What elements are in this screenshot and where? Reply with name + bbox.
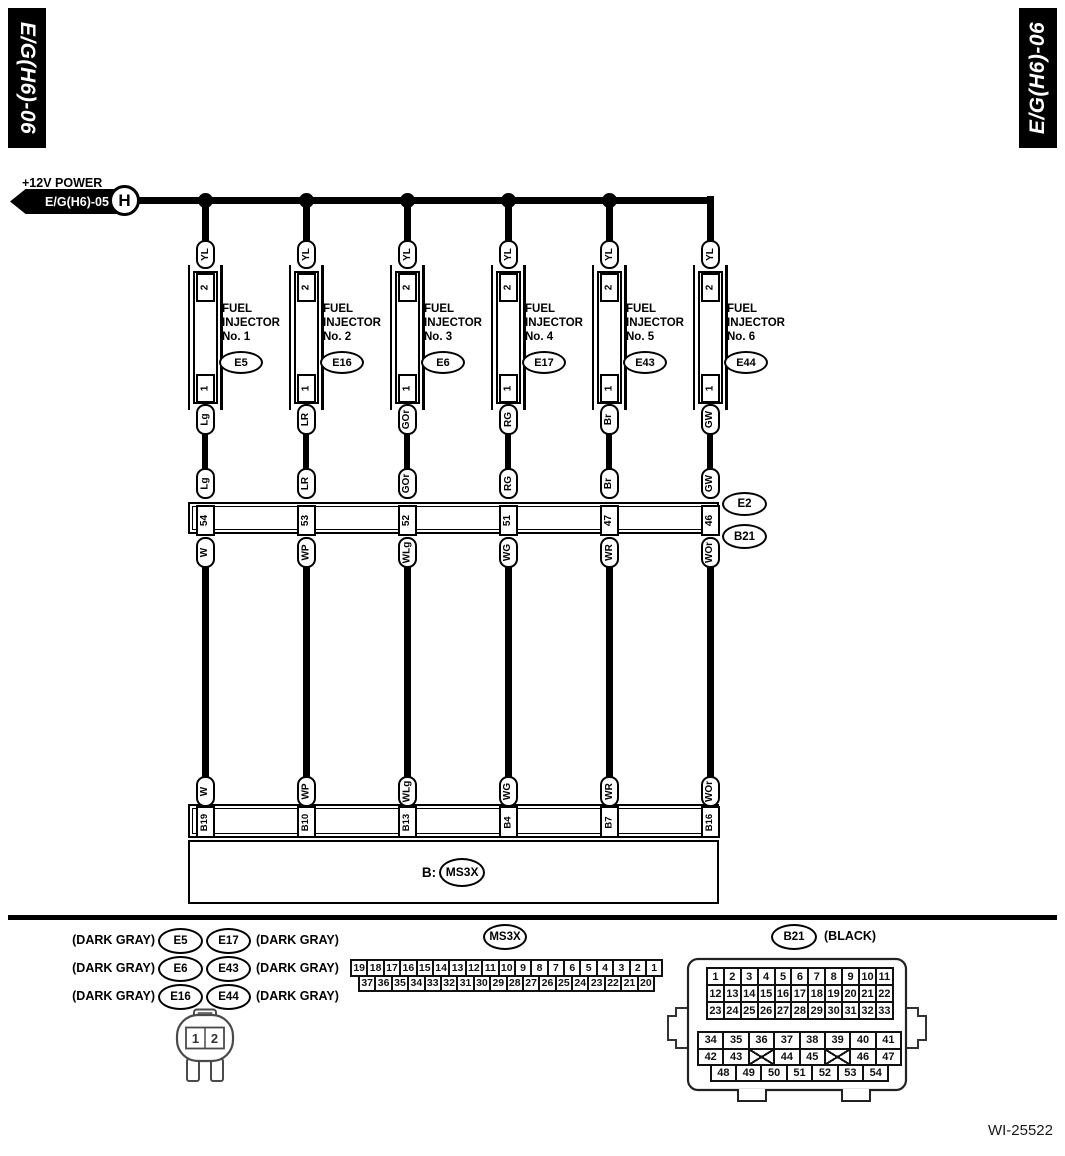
injector-label-line1: FUEL [222, 302, 280, 316]
wire-color-text: Br [604, 414, 615, 425]
ms3x-pin-cell: 25 [556, 976, 572, 992]
ecu-box: B: MS3X [188, 840, 719, 904]
b21-color-note: (BLACK) [824, 929, 876, 943]
wire-color-text: WOr [705, 781, 716, 802]
power-label: +12V POWER [22, 176, 102, 190]
injector-pin-bottom: 1 [600, 374, 619, 403]
injector-label-number: No. 6 [727, 330, 785, 344]
wire-color-label: Br [600, 468, 619, 499]
legend-connector-ref: E6 [158, 956, 203, 982]
injector-label-line2: INJECTOR [626, 316, 684, 330]
b21-pin-cell: 17 [791, 985, 808, 1002]
injector-label-line1: FUEL [525, 302, 583, 316]
power-node-circle: H [109, 185, 140, 216]
power-bus-wire [136, 197, 714, 204]
b21-pin-cell: 51 [787, 1065, 812, 1082]
injector-label-line1: FUEL [323, 302, 381, 316]
b21-pin-cell-mid: 40 [850, 1032, 875, 1049]
pin-number-text: 2 [301, 285, 312, 291]
ecu-pin: B7 [600, 806, 619, 838]
injector-label-number: No. 2 [323, 330, 381, 344]
pin-number-text: 2 [503, 285, 514, 291]
pin-number-text: 2 [604, 285, 615, 291]
b21-pin-cell: 2 [724, 968, 741, 985]
branch-wire [404, 196, 411, 242]
pin-number-text: 47 [604, 515, 615, 526]
wire-segment [404, 433, 410, 471]
b21-pin-cell: 21 [859, 985, 876, 1002]
wire-segment-long [505, 566, 512, 778]
b21-pin-cell-mid: 36 [749, 1032, 774, 1049]
wire-segment [202, 433, 208, 471]
connector-rail-left [491, 265, 494, 410]
injector-label-number: No. 1 [222, 330, 280, 344]
wire-color-label-supply: YL [297, 240, 316, 269]
injector-label-line2: INJECTOR [323, 316, 381, 330]
wire-color-label: WR [600, 776, 619, 807]
wire-color-text: WG [503, 783, 514, 800]
legend-row: (DARK GRAY) E16 E44 (DARK GRAY) [60, 984, 390, 1010]
branch-wire [505, 196, 512, 242]
legend-connector-ref: E5 [158, 928, 203, 954]
pin-number-text: 1 [705, 386, 716, 392]
legend-connector-ref: E17 [206, 928, 251, 954]
wire-color-label: GOr [398, 468, 417, 499]
injector-label: FUEL INJECTOR No. 4 [525, 302, 583, 344]
ms3x-pin-cell: 9 [515, 960, 531, 976]
connector-rail-left [188, 265, 191, 410]
b21-pin-cell: 14 [741, 985, 758, 1002]
injector-label: FUEL INJECTOR No. 2 [323, 302, 381, 344]
b21-pin-cell: 7 [808, 968, 825, 985]
connector-color-note: (DARK GRAY) [256, 933, 386, 947]
injector-pin-top: 2 [297, 273, 316, 302]
page-tab-left: E/G(H6)-06 [8, 8, 46, 148]
b21-pin-cell-mid: 38 [800, 1032, 825, 1049]
legend-connector-ref: E16 [158, 984, 203, 1010]
connector-rail-left [592, 265, 595, 410]
wire-color-text: YL [200, 248, 211, 261]
wire-color-label-supply: YL [701, 240, 720, 269]
b21-pin-cell: 52 [812, 1065, 837, 1082]
wire-segment [707, 433, 713, 471]
ms3x-connector-ref: MS3X [483, 924, 527, 950]
wire-color-text: YL [503, 248, 514, 261]
injector-plug-drawing: 1 2 [170, 1008, 240, 1088]
b21-pin-cell: 28 [791, 1002, 808, 1019]
wire-color-label: W [196, 776, 215, 807]
injector-label-line2: INJECTOR [424, 316, 482, 330]
ecu-box-prefix: B: [422, 865, 436, 880]
wire-color-label: Lg [196, 468, 215, 499]
wire-color-label: GOr [398, 404, 417, 435]
joint-connector-strip [188, 502, 719, 534]
section-divider [8, 915, 1057, 920]
legend-row: (DARK GRAY) E5 E17 (DARK GRAY) [60, 928, 390, 954]
connector-color-note: (DARK GRAY) [60, 989, 155, 1003]
ecu-pin: B10 [297, 806, 316, 838]
pin-number-text: 2 [402, 285, 413, 291]
wire-color-label: RG [499, 404, 518, 435]
pin-number-text: 1 [604, 386, 615, 392]
injector-label: FUEL INJECTOR No. 3 [424, 302, 482, 344]
pin-number-text: B4 [503, 816, 514, 828]
document-code: WI-25522 [938, 1122, 1053, 1139]
joint-connector-pin: 46 [701, 505, 720, 536]
ms3x-pin-cell: 22 [605, 976, 621, 992]
wire-color-label: WP [297, 776, 316, 807]
wire-color-label: WOr [701, 776, 720, 807]
wire-color-text: WP [301, 544, 312, 560]
wire-color-label: WLg [398, 537, 417, 568]
wire-color-label-supply: YL [196, 240, 215, 269]
branch-wire [202, 196, 209, 242]
pin-number-text: B7 [604, 816, 615, 828]
ms3x-pin-cell: 12 [466, 960, 482, 976]
ms3x-pinout-row2: 373635343332313029282726252423222120 [358, 975, 655, 993]
b21-pin-cell-mid: 34 [698, 1032, 723, 1049]
wire-color-label: GW [701, 468, 720, 499]
wire-color-label: WOr [701, 537, 720, 568]
b21-pin-cell: 3 [741, 968, 758, 985]
injector-pin-bottom: 1 [499, 374, 518, 403]
ms3x-pin-cell: 15 [417, 960, 433, 976]
b21-pin-cell: 5 [775, 968, 792, 985]
injector-pin-top: 2 [499, 273, 518, 302]
plug-leg-left [187, 1059, 199, 1081]
ms3x-pin-cell: 26 [539, 976, 555, 992]
wire-segment-long [202, 566, 209, 778]
wire-color-label-supply: YL [499, 240, 518, 269]
injector-label-line2: INJECTOR [525, 316, 583, 330]
ms3x-pin-cell: 10 [499, 960, 515, 976]
wire-segment [505, 433, 511, 471]
wire-color-label: W [196, 537, 215, 568]
pin-number-text: 2 [200, 285, 211, 291]
wire-segment-long [707, 566, 714, 778]
b21-pin-cell: 24 [724, 1002, 741, 1019]
ms3x-pin-cell: 30 [474, 976, 490, 992]
b21-pin-cell: 12 [707, 985, 724, 1002]
wire-color-text: WR [604, 783, 615, 800]
injector-pin-top: 2 [196, 273, 215, 302]
wire-color-label: WR [600, 537, 619, 568]
b21-pin-cell: 26 [758, 1002, 775, 1019]
pin-number-text: B16 [705, 813, 716, 830]
injector-label-number: No. 4 [525, 330, 583, 344]
ms3x-pin-cell: 24 [572, 976, 588, 992]
ecu-pin: B16 [701, 806, 720, 838]
wire-color-label: Lg [196, 404, 215, 435]
b21-notch-right [842, 1089, 870, 1101]
b21-pin-cell: 22 [876, 985, 893, 1002]
pin-number-text: 1 [503, 386, 514, 392]
injector-pin-bottom: 1 [196, 374, 215, 403]
wire-color-text: WP [301, 783, 312, 799]
injector-pin-top: 2 [398, 273, 417, 302]
joint-connector-lower-ref: B21 [722, 524, 767, 549]
legend-connector-ref: E44 [206, 984, 251, 1010]
joint-connector-pin: 51 [499, 505, 518, 536]
wire-color-label: WG [499, 776, 518, 807]
injector-label: FUEL INJECTOR No. 1 [222, 302, 280, 344]
wire-segment [606, 433, 612, 471]
ms3x-pin-cell: 4 [597, 960, 613, 976]
ms3x-pin-cell: 21 [621, 976, 637, 992]
ms3x-pin-cell: 17 [384, 960, 400, 976]
wire-color-text: YL [705, 248, 716, 261]
wire-color-text: YL [402, 248, 413, 261]
wire-segment [303, 433, 309, 471]
ms3x-pin-cell: 19 [351, 960, 367, 976]
page-tab-right: E/G(H6)-06 [1019, 8, 1057, 148]
b21-pin-cell: 31 [842, 1002, 859, 1019]
wire-color-label-supply: YL [600, 240, 619, 269]
b21-pin-cell: 19 [825, 985, 842, 1002]
b21-pin-cell: 53 [838, 1065, 863, 1082]
wire-color-text: W [199, 787, 210, 796]
legend-connector-ref: E43 [206, 956, 251, 982]
wire-color-text: LR [301, 413, 312, 426]
injector-label-line1: FUEL [626, 302, 684, 316]
b21-pinout-mid: 3435363738394041424344454647 [697, 1031, 902, 1066]
injector-pin-top: 2 [600, 273, 619, 302]
b21-pin-cell: 33 [876, 1002, 893, 1019]
injector-label-number: No. 5 [626, 330, 684, 344]
injector-connector-ref: E16 [320, 351, 364, 374]
joint-connector-pin: 47 [600, 505, 619, 536]
b21-notch-left [738, 1089, 766, 1101]
branch-wire [303, 196, 310, 242]
ecu-pin: B4 [499, 806, 518, 838]
ms3x-pin-cell: 36 [375, 976, 391, 992]
pin-number-text: 46 [705, 515, 716, 526]
ms3x-pin-cell: 16 [400, 960, 416, 976]
ecu-pin: B13 [398, 806, 417, 838]
b21-pin-cell: 8 [825, 968, 842, 985]
b21-pin-cell: 54 [863, 1065, 888, 1082]
wire-color-label: Br [600, 404, 619, 435]
b21-pinout-bottom: 48495051525354 [710, 1064, 890, 1083]
ms3x-pin-cell: 29 [490, 976, 506, 992]
joint-connector-pin: 54 [196, 505, 215, 536]
ecu-pin-strip-inner [192, 808, 715, 834]
b21-pin-cell: 13 [724, 985, 741, 1002]
ms3x-pin-cell: 31 [457, 976, 473, 992]
wire-color-label: WP [297, 537, 316, 568]
joint-connector-pin: 52 [398, 505, 417, 536]
b21-pin-cell: 30 [825, 1002, 842, 1019]
b21-connector-ref: B21 [771, 924, 817, 950]
b21-pin-cell: 9 [842, 968, 859, 985]
wire-color-label: WLg [398, 776, 417, 807]
wire-color-text: WG [503, 544, 514, 561]
wire-color-text: RG [503, 476, 514, 491]
pin-number-text: 1 [301, 386, 312, 392]
injector-label: FUEL INJECTOR No. 6 [727, 302, 785, 344]
injector-label-line1: FUEL [727, 302, 785, 316]
joint-connector-strip-inner [192, 506, 715, 530]
b21-pin-cell: 25 [741, 1002, 758, 1019]
connector-rail-left [390, 265, 393, 410]
b21-pin-cell: 48 [711, 1065, 736, 1082]
b21-pin-cell: 18 [808, 985, 825, 1002]
b21-tab-right [906, 1008, 926, 1048]
pin-number-text: B13 [402, 813, 413, 830]
wire-color-text: Lg [200, 413, 211, 425]
wire-color-label: GW [701, 404, 720, 435]
wire-color-label: RG [499, 468, 518, 499]
ecu-box-name: MS3X [439, 858, 485, 887]
wire-color-label: WG [499, 537, 518, 568]
wire-color-text: GOr [402, 410, 413, 429]
wire-color-text: Br [604, 478, 615, 489]
pin-number-text: 52 [402, 515, 413, 526]
wire-color-text: Lg [200, 477, 211, 489]
ms3x-pin-cell: 11 [482, 960, 498, 976]
page-tab-left-label: E/G(H6)-06 [15, 22, 39, 134]
pin-number-text: 51 [503, 515, 514, 526]
pin-number-text: 1 [402, 386, 413, 392]
ms3x-pin-cell: 3 [613, 960, 629, 976]
wire-color-text: WOr [705, 542, 716, 563]
wiring-diagram-page: E/G(H6)-06 E/G(H6)-06 +12V POWER E/G(H6)… [0, 0, 1065, 1156]
injector-pin-bottom: 1 [297, 374, 316, 403]
wire-color-text: W [199, 548, 210, 557]
pin-number-text: B19 [200, 813, 211, 830]
plug-leg-right [211, 1059, 223, 1081]
connector-color-note: (DARK GRAY) [60, 961, 155, 975]
b21-pin-cell: 27 [775, 1002, 792, 1019]
pin-number-text: 1 [200, 386, 211, 392]
b21-pin-cell: 11 [876, 968, 893, 985]
b21-pin-cell: 15 [758, 985, 775, 1002]
injector-label-line1: FUEL [424, 302, 482, 316]
b21-pin-cell: 50 [761, 1065, 786, 1082]
b21-pin-cell: 20 [842, 985, 859, 1002]
wire-color-text: WLg [402, 542, 413, 564]
ms3x-pin-cell: 5 [580, 960, 596, 976]
b21-pinout-top: 1234567891011121314151617181920212223242… [706, 967, 894, 1020]
injector-pin-bottom: 1 [701, 374, 720, 403]
wire-color-label: LR [297, 468, 316, 499]
wire-color-text: RG [503, 412, 514, 427]
ms3x-pin-cell: 32 [441, 976, 457, 992]
ms3x-pin-cell: 8 [531, 960, 547, 976]
injector-label: FUEL INJECTOR No. 5 [626, 302, 684, 344]
ms3x-pin-cell: 13 [449, 960, 465, 976]
branch-wire [707, 196, 714, 242]
wire-color-text: GW [705, 475, 716, 492]
b21-tab-left [668, 1008, 688, 1048]
joint-connector-upper-ref: E2 [722, 492, 767, 516]
wire-color-label-supply: YL [398, 240, 417, 269]
ms3x-pin-cell: 23 [588, 976, 604, 992]
connector-rail-left [693, 265, 696, 410]
plug-pin-2: 2 [211, 1031, 218, 1046]
wire-color-text: YL [604, 248, 615, 261]
power-source-ref: E/G(H6)-05 [45, 195, 109, 209]
injector-connector-ref: E6 [421, 351, 465, 374]
pin-number-text: 54 [200, 515, 211, 526]
wire-color-text: LR [301, 477, 312, 490]
wire-color-text: WLg [402, 781, 413, 803]
plug-pin-1: 1 [192, 1031, 199, 1046]
pin-number-text: 53 [301, 515, 312, 526]
pin-number-text: 2 [705, 285, 716, 291]
b21-pin-cell: 10 [859, 968, 876, 985]
connector-color-note: (DARK GRAY) [60, 933, 155, 947]
b21-pin-cell: 32 [859, 1002, 876, 1019]
wire-color-text: WR [604, 544, 615, 561]
injector-label-number: No. 3 [424, 330, 482, 344]
b21-pin-cell: 23 [707, 1002, 724, 1019]
ms3x-pin-cell: 34 [408, 976, 424, 992]
wire-segment-long [404, 566, 411, 778]
injector-connector-ref: E5 [219, 351, 263, 374]
connector-rail-left [289, 265, 292, 410]
injector-label-line2: INJECTOR [222, 316, 280, 330]
injector-connector-ref: E17 [522, 351, 566, 374]
injector-pin-bottom: 1 [398, 374, 417, 403]
injector-connector-ref: E43 [623, 351, 667, 374]
ecu-pin-strip [188, 804, 719, 838]
ms3x-pin-cell: 27 [523, 976, 539, 992]
b21-pin-cell: 49 [736, 1065, 761, 1082]
ms3x-pin-cell: 37 [359, 976, 375, 992]
branch-wire [606, 196, 613, 242]
b21-pin-cell: 4 [758, 968, 775, 985]
wire-color-text: YL [301, 248, 312, 261]
pin-number-text: B10 [301, 813, 312, 830]
wire-color-text: GOr [402, 474, 413, 493]
injector-pin-top: 2 [701, 273, 720, 302]
b21-pin-cell-mid: 35 [723, 1032, 748, 1049]
wire-color-label: LR [297, 404, 316, 435]
b21-pin-cell-mid: 37 [774, 1032, 799, 1049]
ms3x-pin-cell: 28 [507, 976, 523, 992]
ms3x-pin-cell: 33 [425, 976, 441, 992]
wire-segment-long [606, 566, 613, 778]
ms3x-pin-cell: 2 [630, 960, 646, 976]
ms3x-pin-cell: 14 [433, 960, 449, 976]
ms3x-pin-cell: 35 [392, 976, 408, 992]
b21-pin-cell: 16 [775, 985, 792, 1002]
ms3x-pin-cell: 18 [367, 960, 383, 976]
legend-row: (DARK GRAY) E6 E43 (DARK GRAY) [60, 956, 390, 982]
injector-connector-ref: E44 [724, 351, 768, 374]
joint-connector-pin: 53 [297, 505, 316, 536]
b21-pin-cell: 6 [791, 968, 808, 985]
b21-pin-cell: 29 [808, 1002, 825, 1019]
injector-label-line2: INJECTOR [727, 316, 785, 330]
wire-segment-long [303, 566, 310, 778]
wire-color-text: GW [705, 411, 716, 428]
b21-pin-cell: 1 [707, 968, 724, 985]
page-tab-right-label: E/G(H6)-06 [1026, 22, 1050, 134]
ms3x-pin-cell: 6 [564, 960, 580, 976]
b21-pin-cell-mid: 39 [825, 1032, 850, 1049]
ms3x-pin-cell: 7 [548, 960, 564, 976]
ecu-pin: B19 [196, 806, 215, 838]
b21-pin-cell-mid: 41 [876, 1032, 901, 1049]
